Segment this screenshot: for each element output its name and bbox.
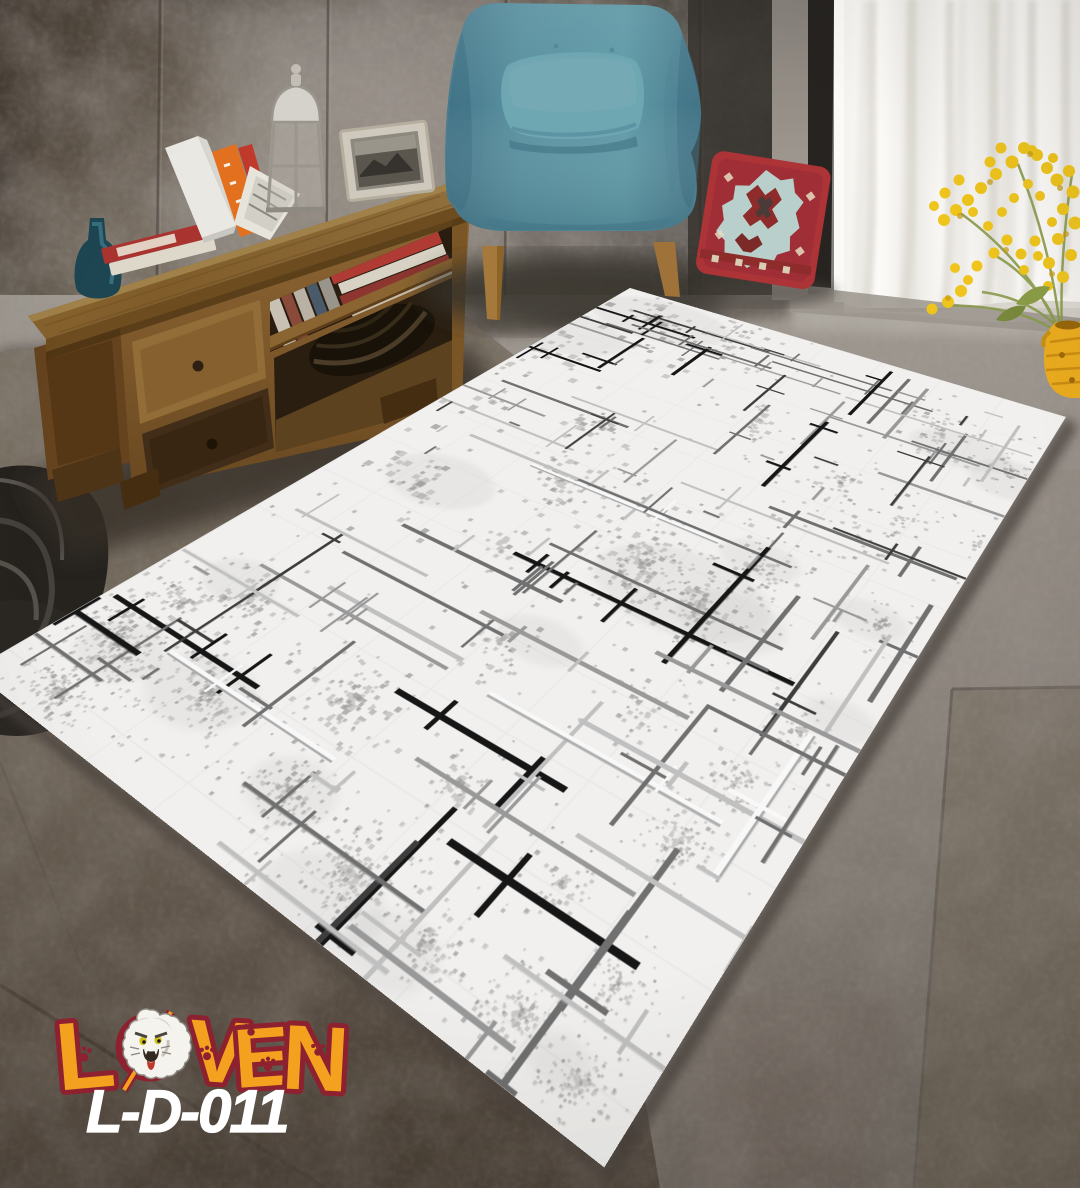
svg-text:N: N xyxy=(280,1006,352,1111)
svg-text:L-D-011: L-D-011 xyxy=(86,1078,288,1145)
